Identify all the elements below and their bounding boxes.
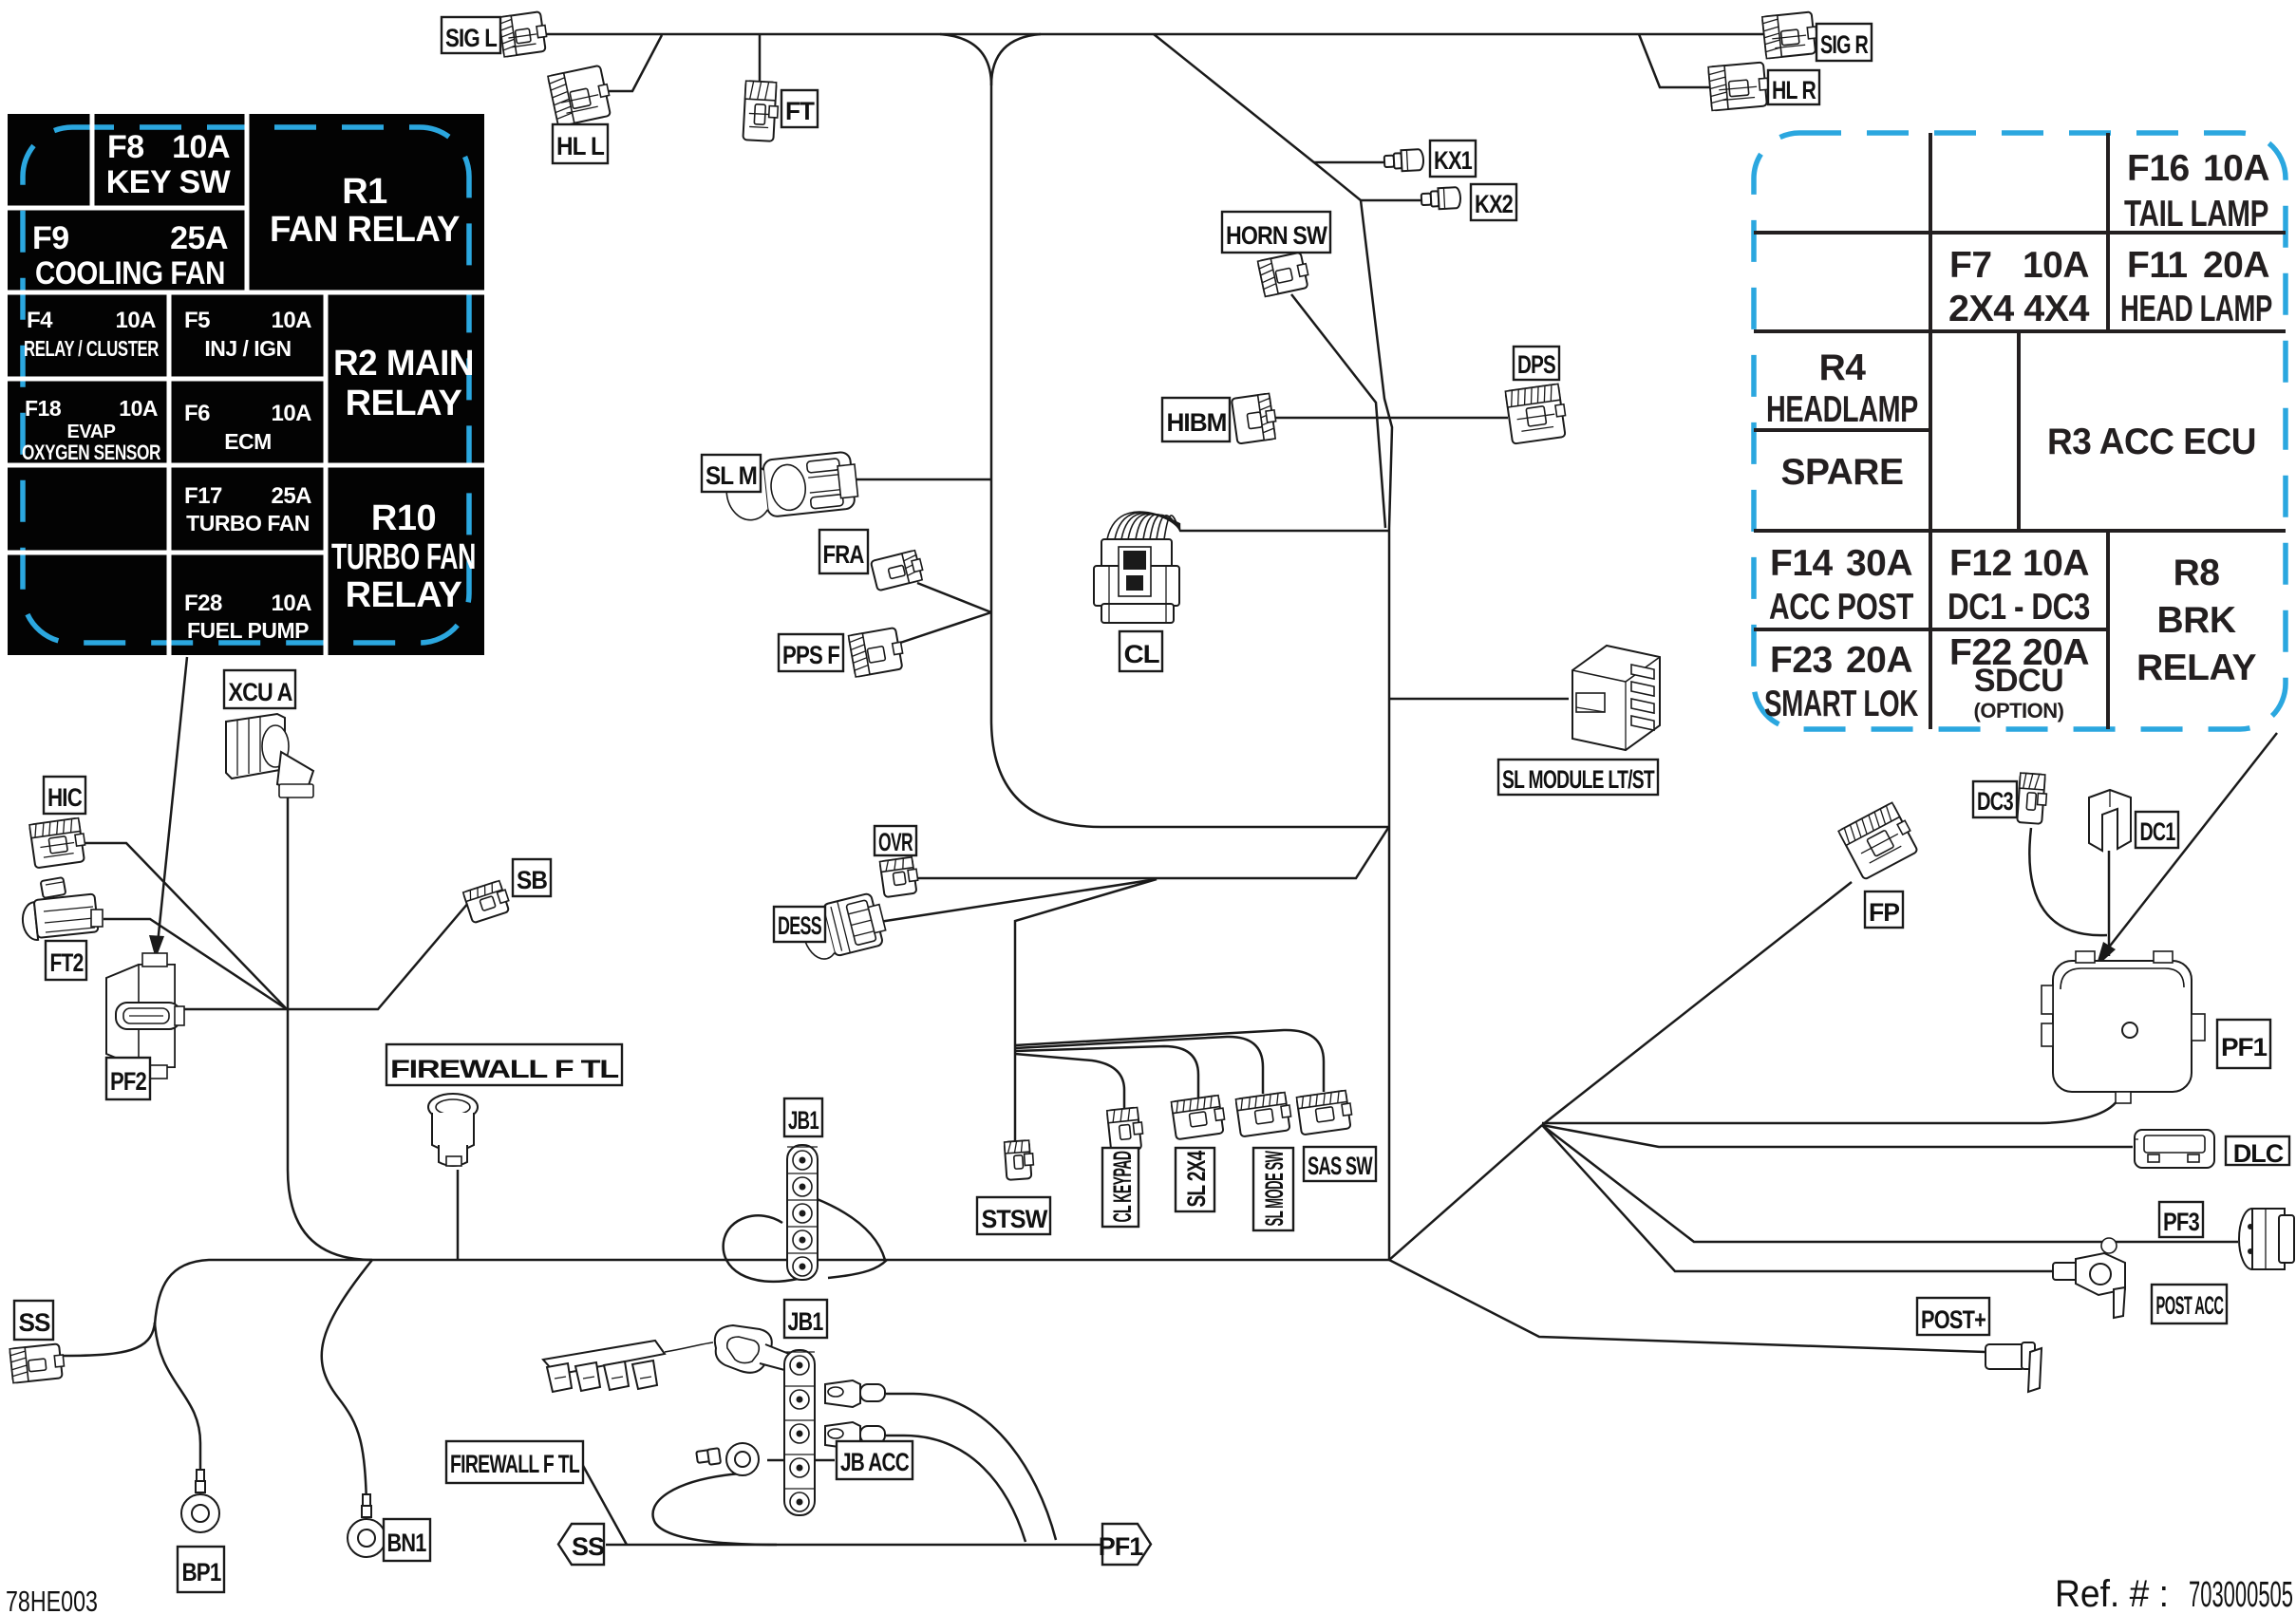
svg-text:SDCU: SDCU: [1974, 663, 2063, 699]
svg-text:COOLING FAN: COOLING FAN: [35, 255, 225, 291]
svg-text:Ref. # :: Ref. # :: [2055, 1573, 2169, 1614]
svg-text:HIC: HIC: [47, 783, 82, 812]
svg-text:FUEL PUMP: FUEL PUMP: [187, 618, 309, 643]
svg-text:SPARE: SPARE: [1781, 452, 1904, 493]
svg-text:ACC POST: ACC POST: [1769, 587, 1914, 628]
svg-text:R4: R4: [1819, 347, 1867, 388]
svg-text:PF1: PF1: [1099, 1532, 1144, 1561]
svg-text:CL: CL: [1124, 640, 1160, 668]
svg-text:703000505: 703000505: [2189, 1575, 2293, 1614]
svg-text:10A: 10A: [2203, 148, 2269, 189]
svg-text:F12: F12: [1949, 543, 2012, 584]
svg-text:SL MODE SW: SL MODE SW: [1260, 1151, 1289, 1227]
svg-text:R1: R1: [342, 172, 387, 212]
svg-text:SAS SW: SAS SW: [1308, 1152, 1373, 1180]
svg-text:F17: F17: [184, 483, 222, 509]
svg-text:25A: 25A: [271, 483, 311, 509]
svg-text:10A: 10A: [119, 396, 158, 421]
svg-text:SB: SB: [517, 866, 547, 894]
svg-text:KEY SW: KEY SW: [106, 164, 232, 200]
svg-text:EVAP: EVAP: [67, 422, 116, 442]
svg-text:F8: F8: [107, 129, 144, 165]
svg-text:F18: F18: [25, 396, 62, 421]
svg-text:HEADLAMP: HEADLAMP: [1766, 389, 1918, 430]
svg-text:FT2: FT2: [50, 948, 84, 977]
svg-text:JB ACC: JB ACC: [840, 1448, 909, 1476]
svg-text:HL L: HL L: [556, 132, 604, 160]
svg-text:OXYGEN SENSOR: OXYGEN SENSOR: [22, 441, 160, 464]
svg-text:HL R: HL R: [1772, 76, 1816, 104]
svg-text:R3 ACC ECU: R3 ACC ECU: [2047, 422, 2256, 462]
svg-text:78HE003: 78HE003: [6, 1585, 98, 1614]
svg-text:HORN SW: HORN SW: [1226, 221, 1327, 250]
svg-text:F9: F9: [32, 220, 69, 256]
svg-text:KX1: KX1: [1434, 146, 1473, 175]
svg-text:POST ACC: POST ACC: [2156, 1291, 2224, 1320]
svg-text:FRA: FRA: [823, 540, 864, 569]
svg-text:PF3: PF3: [2163, 1208, 2200, 1236]
svg-text:SIG L: SIG L: [445, 24, 497, 52]
svg-text:DESS: DESS: [778, 911, 821, 940]
svg-text:F7: F7: [1949, 245, 1992, 286]
svg-text:PPS F: PPS F: [782, 641, 839, 669]
svg-text:RELAY: RELAY: [2136, 647, 2257, 688]
svg-text:TURBO FAN: TURBO FAN: [331, 537, 476, 577]
svg-text:R8: R8: [2174, 553, 2220, 593]
svg-text:HIBM: HIBM: [1167, 408, 1227, 437]
svg-text:JB1: JB1: [788, 1307, 824, 1336]
svg-text:BP1: BP1: [182, 1558, 222, 1586]
svg-text:SL MODULE LT/ST: SL MODULE LT/ST: [1502, 765, 1655, 794]
svg-text:F11: F11: [2127, 245, 2188, 286]
svg-text:SL M: SL M: [706, 461, 757, 490]
svg-text:ECM: ECM: [224, 429, 272, 454]
svg-text:DLC: DLC: [2233, 1139, 2284, 1168]
svg-text:25A: 25A: [170, 220, 228, 256]
svg-text:10A: 10A: [115, 308, 156, 333]
svg-text:FIREWALL F TL: FIREWALL F TL: [450, 1450, 579, 1478]
svg-text:JB1: JB1: [788, 1106, 819, 1135]
svg-text:RELAY / CLUSTER: RELAY / CLUSTER: [24, 336, 160, 361]
svg-text:SIG R: SIG R: [1820, 30, 1868, 59]
svg-text:SL 2X4: SL 2X4: [1182, 1151, 1211, 1208]
svg-text:HEAD LAMP: HEAD LAMP: [2120, 289, 2272, 329]
svg-text:FAN RELAY: FAN RELAY: [270, 210, 460, 250]
svg-text:CL KEYPAD: CL KEYPAD: [1108, 1151, 1137, 1222]
svg-text:FIREWALL F TL: FIREWALL F TL: [390, 1055, 619, 1083]
svg-text:PF1: PF1: [2221, 1033, 2268, 1061]
svg-text:RELAY: RELAY: [346, 575, 462, 615]
svg-text:F23: F23: [1770, 640, 1833, 681]
svg-text:POST+: POST+: [1921, 1305, 1985, 1334]
svg-text:DPS: DPS: [1517, 350, 1555, 379]
svg-text:R10: R10: [371, 498, 436, 538]
svg-text:BN1: BN1: [387, 1529, 427, 1557]
svg-text:F28: F28: [184, 591, 222, 616]
svg-text:10A: 10A: [271, 591, 311, 616]
svg-text:FT: FT: [785, 97, 815, 125]
svg-text:DC1: DC1: [2140, 817, 2176, 846]
svg-text:DC3: DC3: [1977, 787, 2014, 816]
svg-text:10A: 10A: [2023, 245, 2089, 286]
svg-text:10A: 10A: [271, 308, 311, 333]
svg-text:SS: SS: [19, 1308, 50, 1337]
svg-text:DC1 - DC3: DC1 - DC3: [1948, 587, 2090, 628]
svg-text:F14: F14: [1770, 543, 1834, 584]
svg-text:RELAY: RELAY: [346, 384, 462, 423]
svg-text:SS: SS: [572, 1532, 604, 1561]
svg-text:F16: F16: [2127, 148, 2190, 189]
svg-text:20A: 20A: [2203, 245, 2269, 286]
svg-text:SMART LOK: SMART LOK: [1764, 684, 1918, 724]
svg-text:TAIL LAMP: TAIL LAMP: [2124, 194, 2268, 235]
svg-text:F5: F5: [184, 308, 210, 333]
svg-text:XCU A: XCU A: [229, 678, 292, 706]
svg-text:FP: FP: [1869, 898, 1900, 927]
svg-text:10A: 10A: [2023, 543, 2089, 584]
svg-text:30A: 30A: [1846, 543, 1912, 584]
svg-text:10A: 10A: [271, 401, 311, 426]
svg-text:BRK: BRK: [2157, 600, 2236, 641]
svg-text:F6: F6: [184, 401, 210, 426]
svg-text:10A: 10A: [172, 129, 230, 165]
svg-text:PF2: PF2: [110, 1067, 146, 1096]
svg-text:R2 MAIN: R2 MAIN: [333, 344, 474, 384]
svg-text:KX2: KX2: [1475, 190, 1513, 218]
svg-text:INJ / IGN: INJ / IGN: [204, 336, 291, 361]
svg-text:(OPTION): (OPTION): [1974, 699, 2064, 723]
svg-text:20A: 20A: [1846, 640, 1912, 681]
svg-text:OVR: OVR: [878, 828, 913, 856]
svg-text:F4: F4: [27, 308, 53, 333]
svg-text:STSW: STSW: [982, 1205, 1048, 1233]
svg-text:2X4 4X4: 2X4 4X4: [1948, 289, 2090, 329]
svg-text:TURBO FAN: TURBO FAN: [186, 511, 310, 535]
